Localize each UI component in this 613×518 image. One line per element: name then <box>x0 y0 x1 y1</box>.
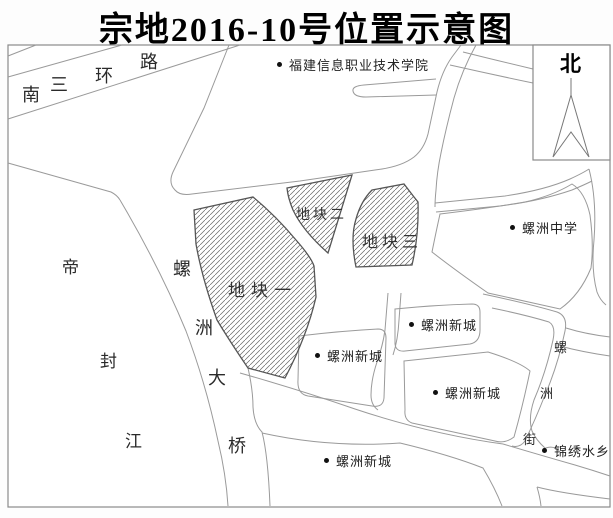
poi-xincheng-3: 螺洲新城 <box>433 383 501 402</box>
bridge-label-char: 洲 <box>195 314 213 340</box>
poi-label: 螺洲中学 <box>522 218 578 237</box>
map-drawing <box>0 0 613 518</box>
poi-dot-icon <box>433 390 438 395</box>
street-label-char: 洲 <box>540 383 553 402</box>
poi-label: 螺洲新城 <box>445 383 501 402</box>
river-label-char: 江 <box>125 427 142 452</box>
plot-3-label: 地块三 <box>362 228 422 252</box>
poi-label: 螺洲新城 <box>421 315 477 334</box>
poi-dot-icon <box>542 448 547 453</box>
river-label-char: 帝 <box>62 253 79 278</box>
poi-xincheng-1: 螺洲新城 <box>409 315 477 334</box>
ring-road-label-char: 环 <box>95 62 113 88</box>
poi-label: 螺洲新城 <box>336 451 392 470</box>
poi-dot-icon <box>315 353 320 358</box>
poi-dot-icon <box>409 322 414 327</box>
poi-dot-icon <box>324 458 329 463</box>
street-label-char: 街 <box>523 429 536 448</box>
bridge-label-char: 螺 <box>173 255 191 281</box>
poi-school: 螺洲中学 <box>510 218 578 237</box>
poi-xincheng-2: 螺洲新城 <box>315 346 383 365</box>
poi-xincheng-4: 螺洲新城 <box>324 451 392 470</box>
poi-dot-icon <box>277 62 282 67</box>
bridge-label-char: 大 <box>208 364 226 390</box>
ring-road-label-char: 三 <box>50 71 68 97</box>
poi-dot-icon <box>510 225 515 230</box>
bridge-label-char: 桥 <box>228 432 246 458</box>
street-label-char: 螺 <box>554 337 567 356</box>
river-label-char: 封 <box>100 347 117 372</box>
ring-road-label-char: 南 <box>22 81 40 107</box>
map-canvas: 宗地2016-10号位置示意图 <box>0 0 613 518</box>
poi-college: 福建信息职业技术学院 <box>277 55 429 74</box>
plot-1-label: 地块一 <box>228 276 297 301</box>
poi-jinxiu: 锦绣水乡 <box>542 441 610 460</box>
plot-2-label: 地块二 <box>296 204 347 224</box>
poi-label: 螺洲新城 <box>327 346 383 365</box>
compass-north-label: 北 <box>560 48 581 78</box>
ring-road-label-char: 路 <box>140 48 158 74</box>
poi-label: 福建信息职业技术学院 <box>289 55 429 74</box>
poi-label: 锦绣水乡 <box>554 441 610 460</box>
